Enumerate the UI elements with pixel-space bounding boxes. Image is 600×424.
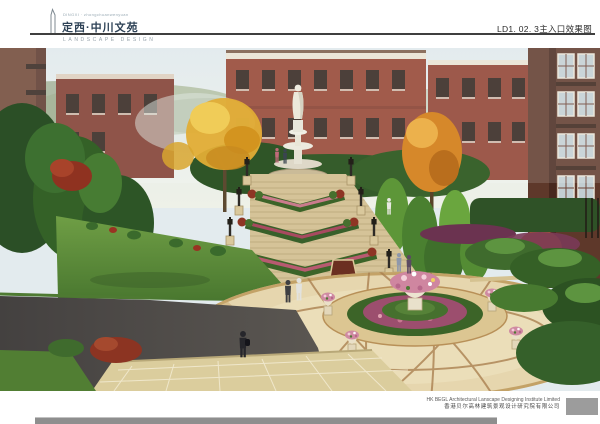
company-block: HK BEGL Architectural Lanscape Designing… (427, 397, 561, 411)
logo-subtext: DINGXI · zhongchuanwenyuan (63, 12, 129, 17)
sheet-label: LD1. 02. 3主入口效果图 (497, 23, 592, 35)
footer-marker (566, 398, 598, 415)
company-name-en: HK BEGL Architectural Lanscape Designing… (427, 397, 561, 404)
tower-logo-icon (47, 8, 59, 35)
company-name-cn: 香港贝尔高林建筑景观设计研究院有限公司 (427, 404, 561, 411)
logo-caption: LANDSCAPE DESIGN (63, 37, 155, 43)
rendering-canvas (0, 48, 600, 391)
presentation-board: DINGXI · zhongchuanwenyuan 定西·中川文苑 LANDS… (0, 0, 600, 424)
footer-bar (35, 417, 497, 424)
entrance-rendering (0, 48, 600, 391)
